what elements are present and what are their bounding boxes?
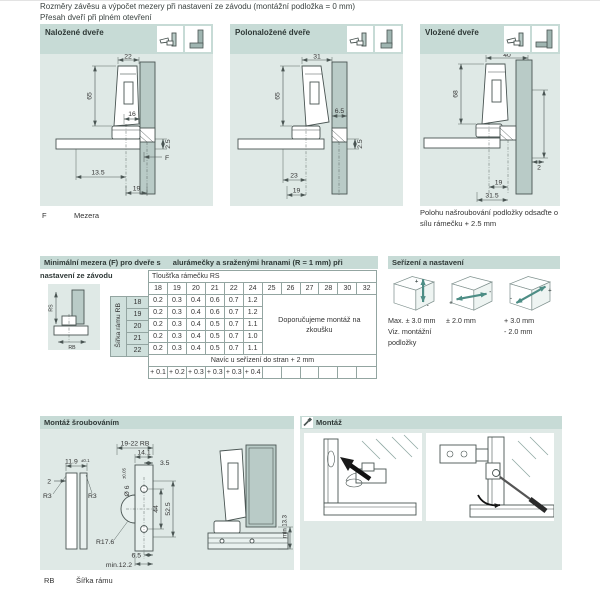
- adjustment-label: ± 2.0 mm: [446, 315, 502, 326]
- extra-value-empty: [281, 367, 300, 379]
- row-label: 18: [127, 297, 149, 309]
- panel-title: Vložené dveře: [425, 28, 479, 37]
- plus-sign: +: [415, 279, 419, 285]
- gap-table-title-part1: Minimální mezera (F) pro dveře s: [40, 258, 161, 267]
- row-group-label: Šířka rámu RB: [115, 303, 122, 348]
- gap-value: 0.7: [224, 307, 243, 319]
- gap-value: 0.2: [149, 319, 168, 331]
- panel-body: 22 65 16 2.5 F 13.5 19: [40, 54, 213, 206]
- cabinet-cube-vertical-arrow-icon: + -: [388, 272, 440, 312]
- panel-vlozene-dvere: Vložené dveře 40 68: [420, 24, 560, 206]
- dim-gap-f: F: [165, 155, 169, 162]
- col-header: 28: [319, 283, 338, 295]
- gap-value: 1.1: [243, 343, 262, 355]
- extra-value-empty: [338, 367, 357, 379]
- extra-value-empty: [357, 367, 377, 379]
- legend-f-key: F: [42, 211, 47, 220]
- panel-title: Naložené dveře: [45, 28, 104, 37]
- extra-value: + 0.1: [149, 367, 168, 379]
- adjustment-label: Viz. montážní: [388, 326, 444, 337]
- gap-value: 0.5: [205, 343, 224, 355]
- col-header: 19: [167, 283, 186, 295]
- col-header: 27: [300, 283, 319, 295]
- gap-value: 0.4: [186, 295, 205, 307]
- dim-height: 65: [275, 92, 282, 100]
- legend-rb-label: Šířka rámu: [76, 576, 113, 585]
- adjustment-item-side: + - ± 2.0 mm: [446, 272, 502, 326]
- dim-inset: 6.5: [335, 108, 345, 115]
- inset-door-cross-section-drawing: 40 68 2 19 31.5: [420, 54, 560, 206]
- page-top-divider: [0, 0, 600, 1]
- dim-profile-width-tol: ±0.1: [81, 458, 90, 463]
- mounting-dimension-drawing: 11.9 ±0.1 2 R3 R3 19-22 RB 14.1 3.5 Ø 6 …: [40, 429, 294, 570]
- gap-value: 0.2: [149, 295, 168, 307]
- dim-top-width: 31: [313, 54, 321, 61]
- extra-value-empty: [319, 367, 338, 379]
- adjustment-label: - 2.0 mm: [504, 326, 560, 337]
- side-adjust-note: Navíc u seřízení do stran + 2 mm: [149, 355, 377, 367]
- panel-title: Polonaložené dveře: [235, 28, 310, 37]
- minus-sign: -: [489, 289, 491, 295]
- dim-hole-dia: Ø 6: [124, 485, 131, 496]
- row-label: 21: [127, 333, 149, 345]
- extra-value-empty: [262, 367, 281, 379]
- hinge-side-view-icon: [504, 26, 530, 52]
- mounting-title-bar: Montáž šroubováním: [40, 416, 294, 429]
- col-header: 18: [149, 283, 168, 295]
- adjustment-label: + 3.0 mm: [504, 315, 560, 326]
- row-label: 20: [127, 321, 149, 333]
- dim-bottom1: 19: [495, 180, 503, 187]
- dim-offset: 2.5: [357, 139, 364, 149]
- dim-top-width: 40: [503, 54, 511, 59]
- adjustment-item-height: + - Max. ± 3.0 mm Viz. montážní podložky: [388, 272, 444, 348]
- dim-r3-right: R3: [88, 493, 97, 500]
- gap-value: 0.7: [224, 319, 243, 331]
- extra-value: + 0.3: [224, 367, 243, 379]
- extra-value: + 0.3: [205, 367, 224, 379]
- extra-value-empty: [300, 367, 319, 379]
- diagram-rb-label: RB: [68, 345, 76, 350]
- recommendation-line2: zkoušku: [263, 325, 376, 335]
- adjustment-label: podložky: [388, 337, 444, 348]
- col-header: 30: [338, 283, 357, 295]
- dim-r3-left: R3: [43, 493, 52, 500]
- dim-plate-w1: 14.1: [137, 450, 150, 457]
- gap-value: 1.1: [243, 319, 262, 331]
- gap-value: 0.3: [167, 295, 186, 307]
- dim-bottom1: 13.5: [91, 170, 104, 177]
- legend-f-label: Mezera: [74, 211, 99, 220]
- gap-value: 0.4: [186, 319, 205, 331]
- dim-inset: 16: [128, 111, 136, 118]
- gap-value: 0.5: [205, 331, 224, 343]
- gap-value: 0.2: [149, 343, 168, 355]
- adjustment-title-bar: Seřízení a nastavení: [388, 256, 560, 269]
- cabinet-cube-side-arrow-icon: + -: [446, 272, 498, 312]
- washer-offset-note: Polohu našroubování podložky odsaďte o s…: [420, 208, 562, 230]
- minus-sign: -: [427, 303, 429, 309]
- dim-inset: 2: [537, 165, 541, 172]
- table-row: 0.2 0.3 0.4 0.6 0.7 1.2 Doporučujeme mon…: [149, 295, 377, 307]
- panel-body: 31 65 6.5 2.5 23 19: [230, 54, 403, 206]
- gap-value: 0.3: [167, 331, 186, 343]
- diagram-rs-label: RS: [49, 304, 55, 312]
- dim-plate-b1: 6.5: [132, 553, 142, 560]
- gap-value: 1.2: [243, 307, 262, 319]
- col-header: 25: [262, 283, 281, 295]
- adjustment-label: Max. ± 3.0 mm: [388, 315, 444, 326]
- half-overlay-door-cross-section-drawing: 31 65 6.5 2.5 23 19: [230, 54, 403, 206]
- dim-hole-tol: ±0.05: [122, 467, 127, 479]
- extra-value: + 0.4: [243, 367, 262, 379]
- gap-value: 0.7: [224, 343, 243, 355]
- row-group-label-cell: Šířka rámu RB: [111, 297, 127, 357]
- panel-polonalozene-dvere: Polonaložené dveře 31 65: [230, 24, 403, 206]
- dim-bottom1: 23: [290, 173, 298, 180]
- mounting-title: Montáž šroubováním: [40, 418, 119, 427]
- gap-value: 0.3: [167, 307, 186, 319]
- dim-bottom2: 31.5: [485, 193, 498, 200]
- panel-header: Naložené dveře: [40, 24, 213, 54]
- recommendation-line1: Doporučujeme montáž na: [263, 315, 376, 325]
- hinge-side-view-icon: [347, 26, 373, 52]
- gap-value: 0.3: [167, 343, 186, 355]
- dim-top-width: 22: [124, 54, 132, 61]
- dim-plate-b2: min.12.2: [106, 562, 132, 569]
- gap-value: 0.6: [205, 295, 224, 307]
- gap-value: 1.2: [243, 295, 262, 307]
- table-row: Šířka rámu RB 18: [111, 297, 149, 309]
- dim-height: 65: [87, 92, 94, 100]
- panel-body: 40 68 2 19 31.5: [420, 54, 560, 206]
- table-row: Tloušťka rámečku RS: [149, 271, 377, 283]
- gap-table: Tloušťka rámečku RS 18 19 20 21 22 24 25…: [148, 270, 377, 379]
- dim-radius: R17.6: [96, 539, 114, 546]
- panel-nalozene-dvere: Naložené dveře 22 65: [40, 24, 213, 206]
- page-subtitle: Přesah dveří při plném otevření: [40, 13, 152, 22]
- col-header: 20: [186, 283, 205, 295]
- door-position-icon: [532, 26, 558, 52]
- panel-header: Polonaložené dveře: [230, 24, 403, 54]
- gap-table-row-headers: Šířka rámu RB 18 19 20 21 22: [110, 296, 149, 357]
- col-group-label: Tloušťka rámečku RS: [149, 271, 377, 283]
- mounting-drawings: 11.9 ±0.1 2 R3 R3 19-22 RB 14.1 3.5 Ø 6 …: [40, 429, 294, 570]
- gap-value: 0.7: [224, 331, 243, 343]
- gap-value: 0.5: [205, 319, 224, 331]
- assembly-tool-icon: [302, 417, 313, 428]
- legend-rb-key: RB: [44, 576, 54, 585]
- minus-sign: -: [510, 295, 512, 301]
- gap-value: 0.3: [167, 319, 186, 331]
- dim-bottom2: 19: [133, 186, 141, 193]
- assembly-title-bar: Montáž: [300, 416, 562, 429]
- dim-rb-range: 19-22 RB: [121, 441, 150, 448]
- door-position-icon: [375, 26, 401, 52]
- table-row: 18 19 20 21 22 24 25 26 27 28 30 32: [149, 283, 377, 295]
- dim-profile-edge: 2: [47, 479, 51, 486]
- page-title: Rozměry závěsu a výpočet mezery při nast…: [40, 2, 355, 11]
- panel-header: Vložené dveře: [420, 24, 560, 54]
- row-label: 19: [127, 309, 149, 321]
- dim-offset: 2.5: [165, 139, 172, 149]
- dim-bottom2: 19: [293, 188, 301, 195]
- gap-value: 1.0: [243, 331, 262, 343]
- assembly-step1-illustration: [304, 433, 422, 521]
- dim-height: 68: [453, 90, 460, 98]
- dim-plate-span: 52.5: [165, 502, 172, 515]
- table-row: + 0.1 + 0.2 + 0.3 + 0.3 + 0.3 + 0.4: [149, 367, 377, 379]
- dim-hole-spacing: 44: [153, 505, 160, 513]
- gap-value: 0.6: [205, 307, 224, 319]
- dim-min-clearance: min 13.3: [283, 514, 289, 538]
- extra-value: + 0.2: [167, 367, 186, 379]
- gap-value: 0.2: [149, 307, 168, 319]
- gap-value: 0.7: [224, 295, 243, 307]
- gap-value: 0.4: [186, 307, 205, 319]
- col-header: 26: [281, 283, 300, 295]
- extra-value: + 0.3: [186, 367, 205, 379]
- adjustment-title: Seřízení a nastavení: [388, 258, 464, 267]
- assembly-illustrations: [300, 429, 562, 570]
- gap-value: 0.2: [149, 331, 168, 343]
- cabinet-cube-depth-arrow-icon: - +: [504, 272, 556, 312]
- adjustment-item-depth: - + + 3.0 mm - 2.0 mm: [504, 272, 560, 337]
- frame-section-diagram: RS RB: [48, 284, 100, 350]
- plus-sign: +: [449, 301, 453, 307]
- recommendation-cell: Doporučujeme montáž na zkoušku: [262, 295, 376, 355]
- dim-plate-w2: 3.5: [160, 460, 170, 467]
- gap-value: 0.4: [186, 331, 205, 343]
- door-position-icon: [185, 26, 211, 52]
- col-header: 22: [224, 283, 243, 295]
- gap-value: 0.4: [186, 343, 205, 355]
- col-header: 32: [357, 283, 377, 295]
- table-row: Navíc u seřízení do stran + 2 mm: [149, 355, 377, 367]
- plus-sign: +: [548, 288, 552, 294]
- overlay-door-cross-section-drawing: 22 65 16 2.5 F 13.5 19: [40, 54, 213, 206]
- assembly-step2-illustration: [426, 433, 554, 521]
- col-header: 21: [205, 283, 224, 295]
- hinge-side-view-icon: [157, 26, 183, 52]
- col-header: 24: [243, 283, 262, 295]
- dim-profile-width: 11.9: [65, 459, 78, 466]
- row-label: 22: [127, 345, 149, 357]
- gap-table-title-bar: Minimální mezera (F) pro dveře s aluráme…: [40, 256, 378, 269]
